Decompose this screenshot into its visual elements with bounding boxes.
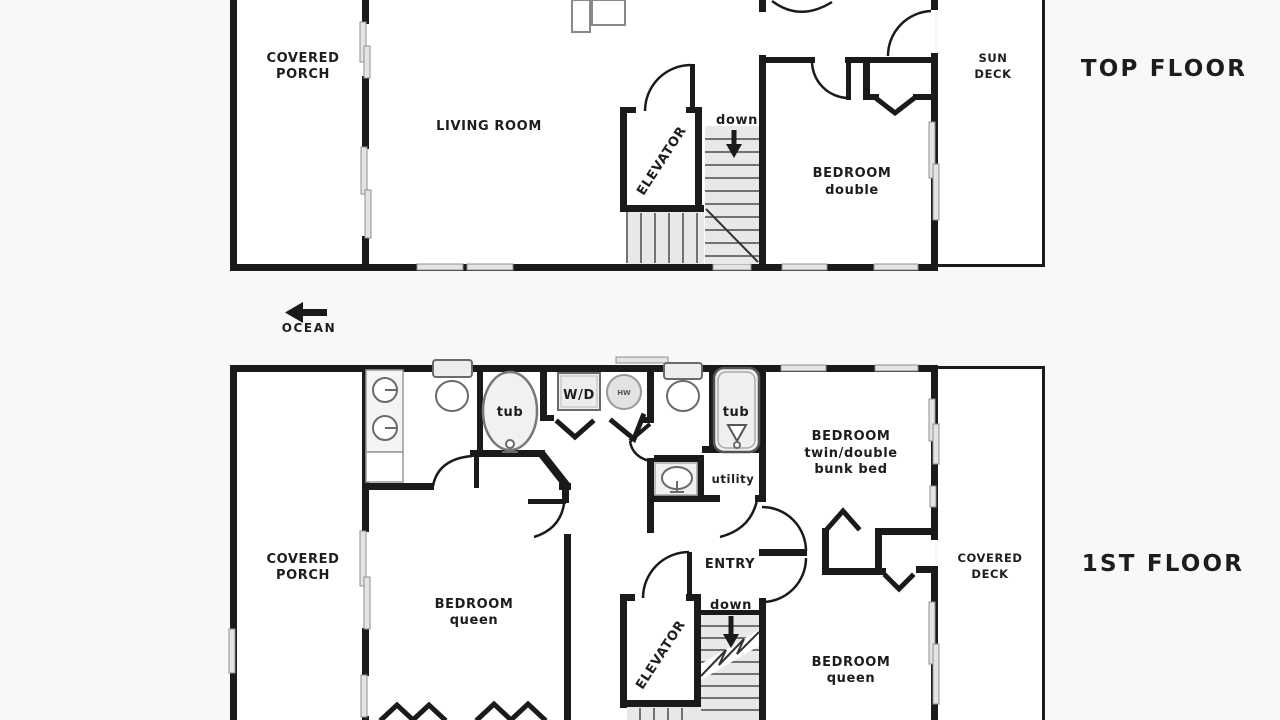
sun-deck-label-2: DECK xyxy=(974,67,1012,81)
sun-deck-label: SUN xyxy=(978,51,1007,65)
water-heater-label: HW xyxy=(617,389,631,397)
bedroom-bunk-label: BEDROOM xyxy=(812,429,891,444)
top-floor-interior xyxy=(233,0,935,268)
cabinet xyxy=(366,452,403,482)
utility-sink-icon xyxy=(655,463,697,495)
tub-label: tub xyxy=(497,405,524,420)
bedroom-queen-door-leaf xyxy=(528,499,566,504)
washer-dryer-label: W/D xyxy=(563,388,595,403)
ocean-label: OCEAN xyxy=(282,321,337,335)
floor-plan-drawing: COVERED PORCH LIVING ROOM ELEVATOR down … xyxy=(0,0,1280,720)
covered-porch-label: COVERED xyxy=(266,552,339,567)
bedroom-queen-left-label-2: queen xyxy=(450,613,498,628)
elevator-door-leaf xyxy=(687,552,692,598)
toilet-icon xyxy=(664,363,702,411)
living-room-label: LIVING ROOM xyxy=(436,119,542,134)
bedroom-bunk-label-3: bunk bed xyxy=(814,462,887,477)
floor-plan-page: COVERED PORCH LIVING ROOM ELEVATOR down … xyxy=(0,0,1280,720)
stairs-down-label: down xyxy=(716,113,758,128)
bedroom-queen-right-label: BEDROOM xyxy=(812,655,891,670)
covered-porch-label: COVERED xyxy=(266,51,339,66)
covered-deck-label-2: DECK xyxy=(971,567,1009,581)
covered-porch-label-2: PORCH xyxy=(276,67,330,82)
sun-deck-area xyxy=(938,0,1042,264)
bedroom-bunk-label-2: twin/double xyxy=(804,446,897,461)
stairs-down-label: down xyxy=(710,598,752,613)
ocean-arrow-icon xyxy=(285,302,327,323)
bedroom-double-label-2: double xyxy=(825,183,879,198)
ocean-indicator: OCEAN xyxy=(282,302,337,335)
top-floor-plan: COVERED PORCH LIVING ROOM ELEVATOR down … xyxy=(230,0,1247,271)
top-floor-title: TOP FLOOR xyxy=(1081,56,1247,82)
first-floor-title: 1ST FLOOR xyxy=(1082,551,1244,577)
covered-deck-area xyxy=(938,369,1042,720)
bedroom-queen-right-label-2: queen xyxy=(827,671,875,686)
tub-label: tub xyxy=(723,405,750,420)
bedroom-door-leaf xyxy=(846,60,851,100)
utility-label: utility xyxy=(712,472,755,486)
covered-deck-label: COVERED xyxy=(957,551,1022,565)
bedroom-double-label: BEDROOM xyxy=(813,166,892,181)
entry-label: ENTRY xyxy=(705,557,755,572)
covered-porch-label-2: PORCH xyxy=(276,568,330,583)
bedroom-queen-left-label: BEDROOM xyxy=(435,597,514,612)
first-floor-plan: COVERED PORCH tub W/D HW tub utility BED… xyxy=(229,357,1244,720)
elevator-door-leaf xyxy=(690,64,695,112)
